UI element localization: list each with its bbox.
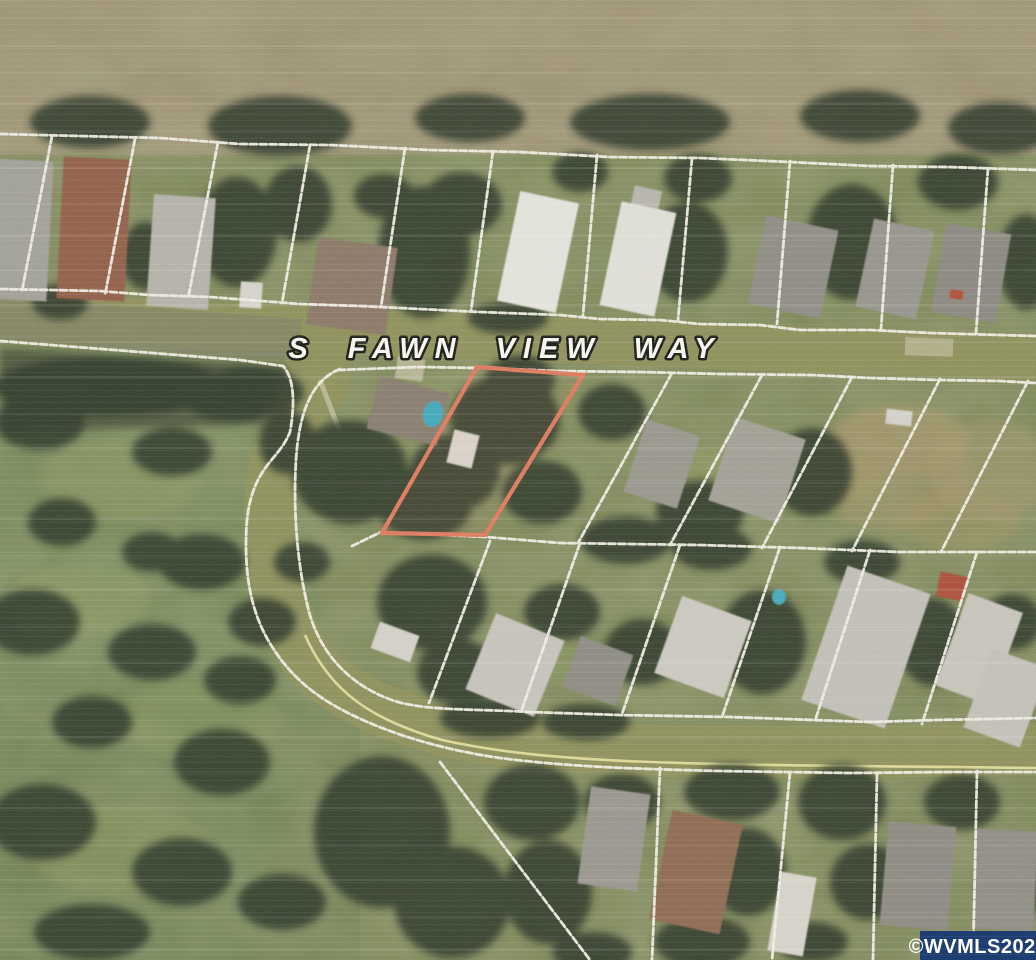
photo-grain [0, 0, 1036, 960]
aerial-parcel-map: S FAWN VIEW WAY ©WVMLS2024 [0, 0, 1036, 960]
street-name-label: S FAWN VIEW WAY [288, 333, 721, 365]
watermark-badge: ©WVMLS2024 [909, 931, 1036, 960]
watermark-text: ©WVMLS2024 [909, 936, 1036, 958]
aerial-photo: S FAWN VIEW WAY ©WVMLS2024 [0, 0, 1036, 960]
